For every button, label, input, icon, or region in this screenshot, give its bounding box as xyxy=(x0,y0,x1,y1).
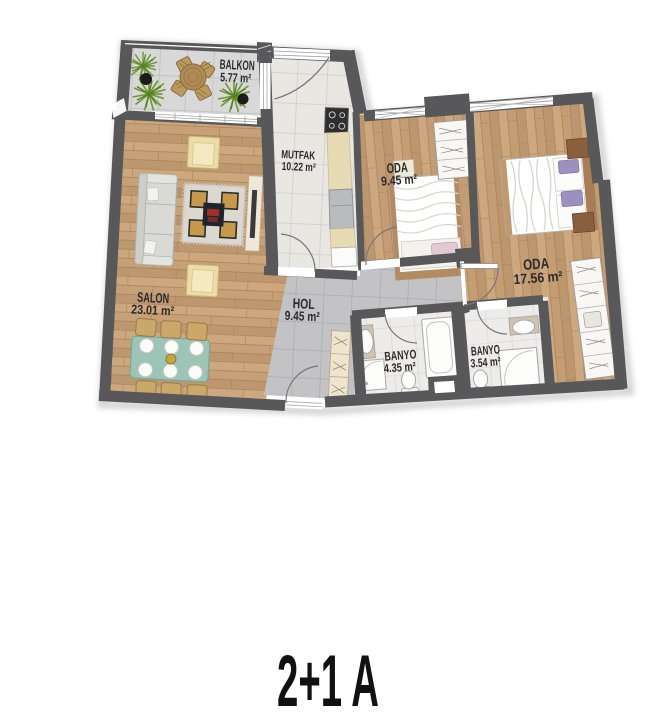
svg-text:9.45 m²: 9.45 m² xyxy=(284,308,320,325)
svg-text:23.01 m²: 23.01 m² xyxy=(131,302,175,319)
svg-text:4.35 m²: 4.35 m² xyxy=(383,359,416,375)
svg-text:9.45 m²: 9.45 m² xyxy=(381,171,418,189)
svg-text:3.54 m²: 3.54 m² xyxy=(470,354,501,370)
svg-text:10.22 m²: 10.22 m² xyxy=(281,161,316,174)
svg-text:2+1 A: 2+1 A xyxy=(277,641,379,722)
svg-text:5.77 m²: 5.77 m² xyxy=(220,70,252,85)
